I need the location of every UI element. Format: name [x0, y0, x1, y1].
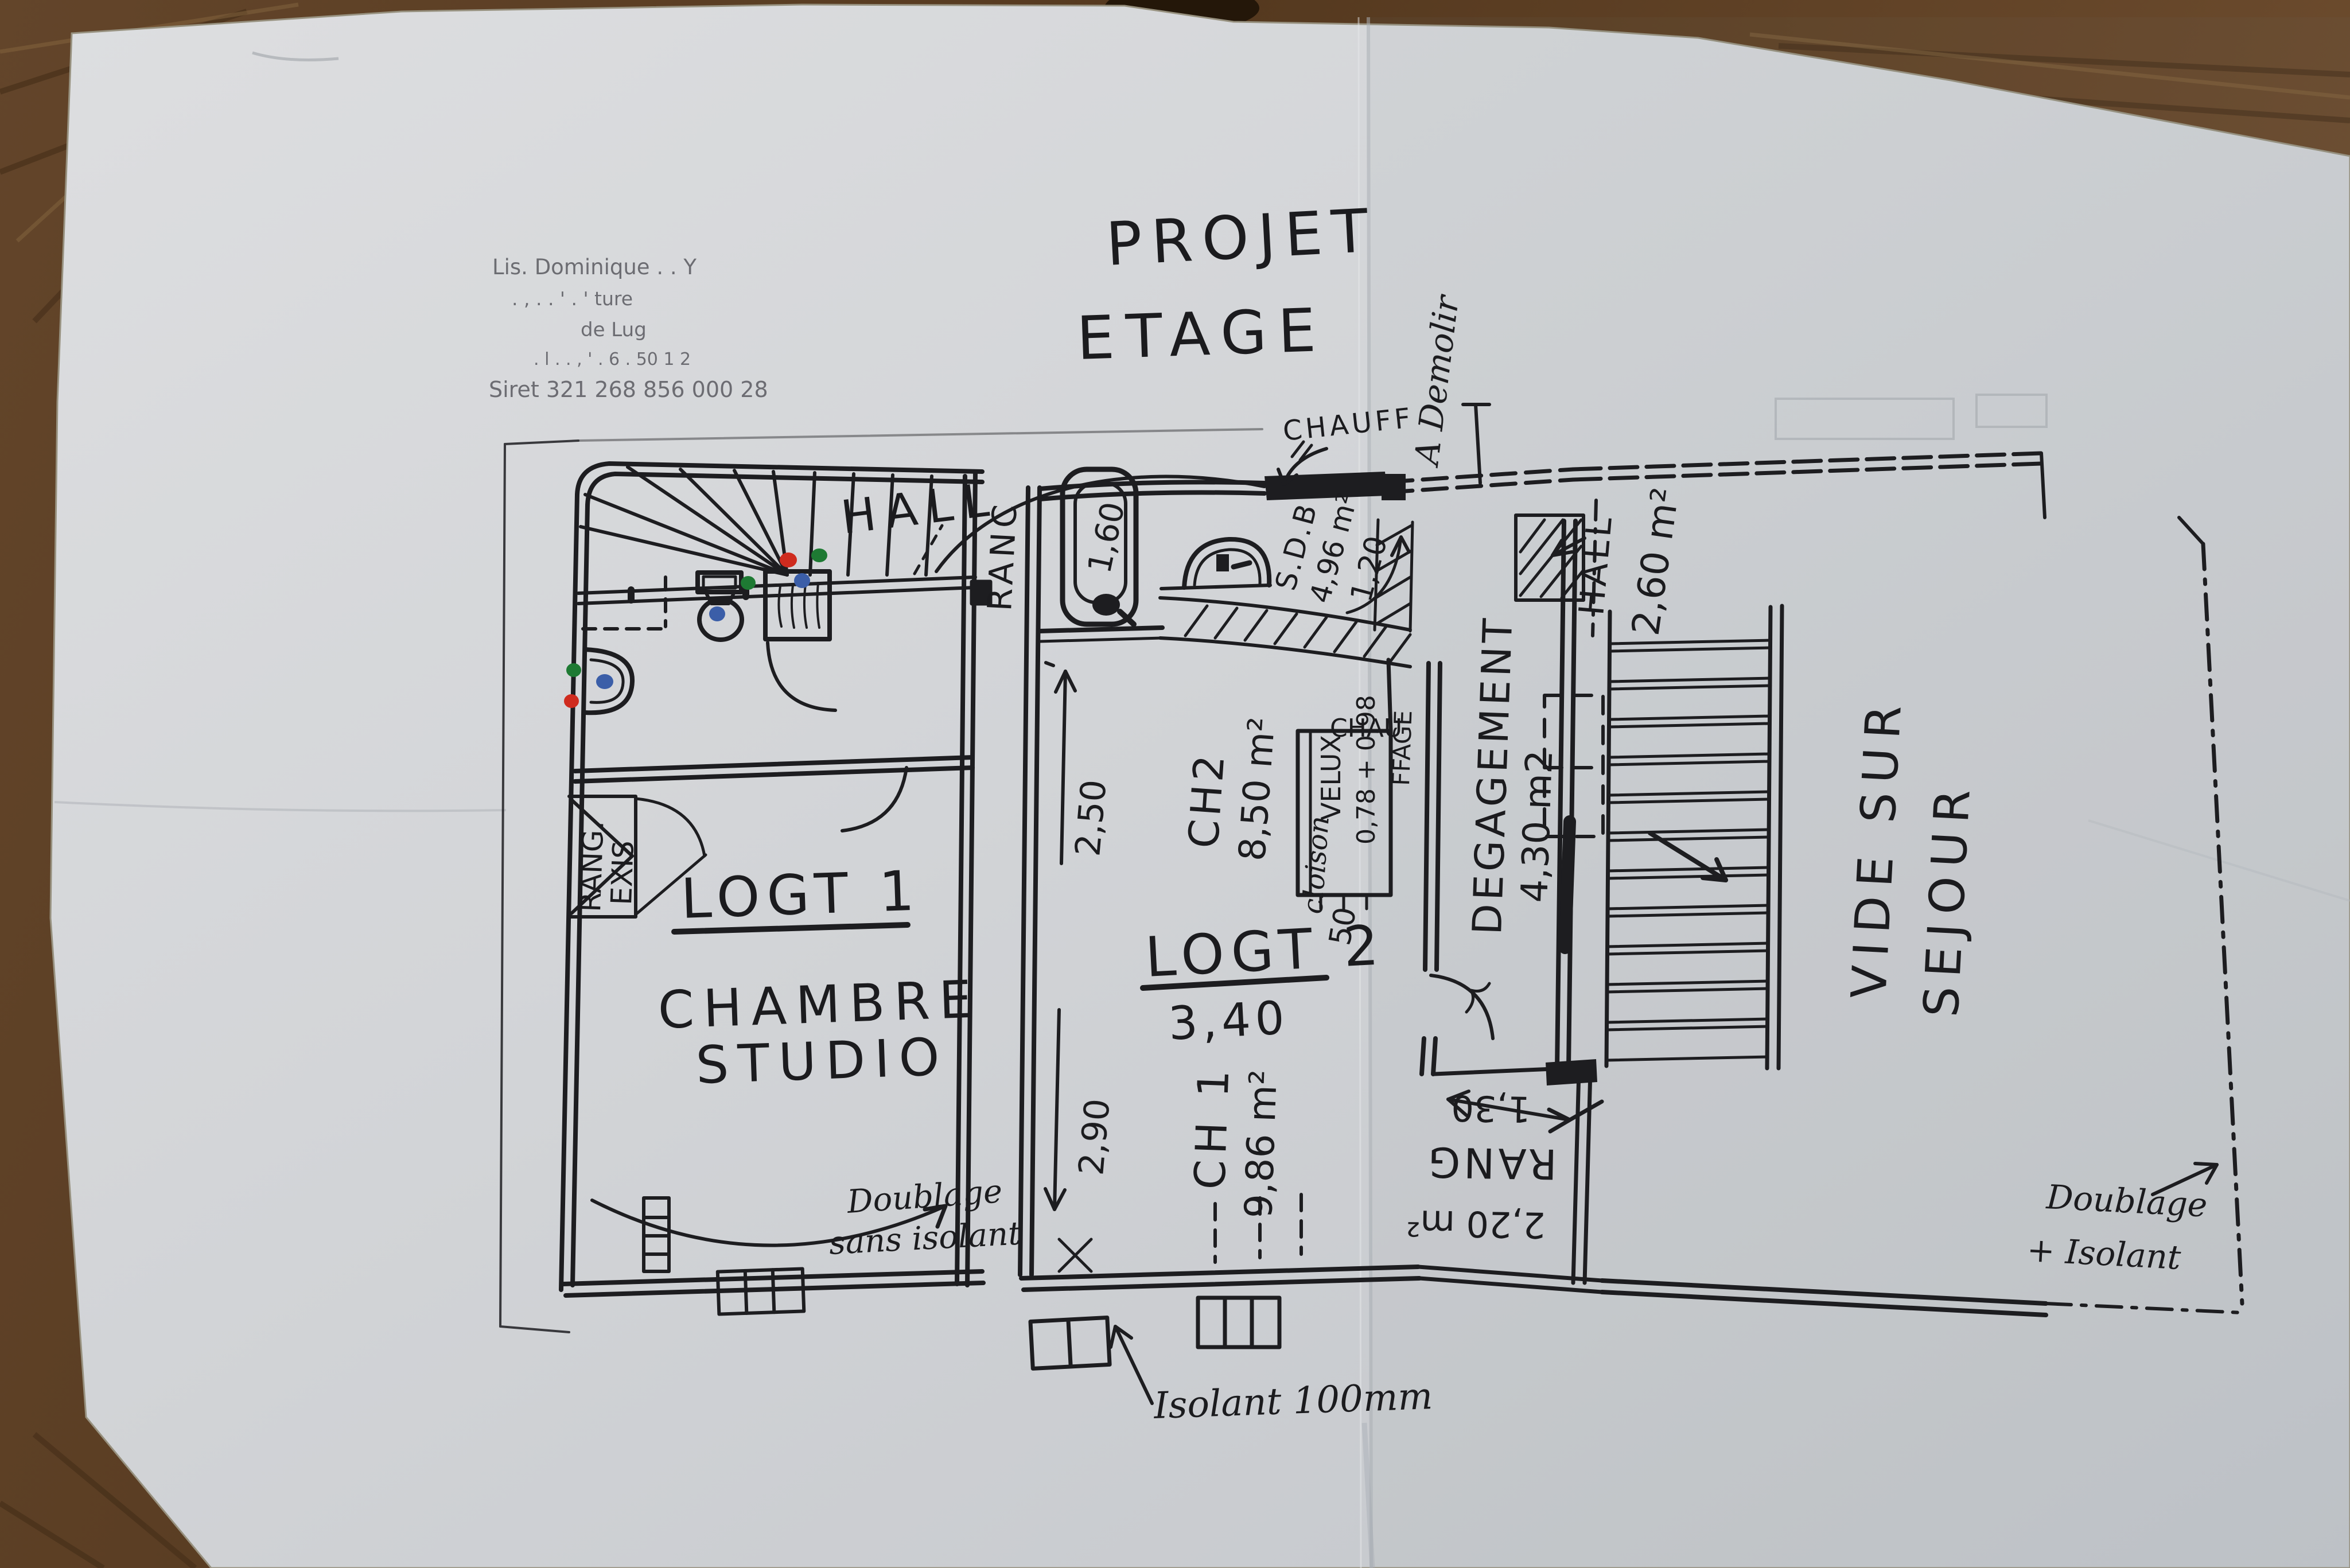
- label-ch1-area: 9,86 m²: [1236, 1069, 1286, 1219]
- dim-logt2-340: 3,40: [1167, 991, 1290, 1050]
- label-logt1: LOGT 1: [680, 858, 922, 931]
- label-studio: STUDIO: [695, 1027, 950, 1096]
- dim-ch1-290: 2,90: [1071, 1097, 1118, 1177]
- blue-marker-dot: [709, 606, 725, 621]
- stamp-line2: . , . . ' . ' ture: [512, 287, 633, 310]
- label-rang-room: RANG: [1425, 1138, 1557, 1188]
- label-ch2: CH2: [1179, 750, 1234, 850]
- blue-marker-dot: [596, 674, 613, 689]
- note-doublage-plus-2: + Isolant: [2026, 1230, 2182, 1277]
- green-marker-dot: [811, 548, 827, 562]
- label-chauffage-2: FFAGE: [1387, 710, 1418, 786]
- label-ranc: RANC: [980, 499, 1025, 612]
- blue-marker-dot: [794, 573, 810, 588]
- floorplan-photo: Lis. Dominique . . Y . , . . ' . ' ture …: [0, 0, 2350, 1568]
- dim-velux: 0,78 + 0,98: [1352, 695, 1381, 845]
- dim-rang-130: 1,30: [1451, 1087, 1531, 1130]
- stamp-line4: . l . . , ' . 6 . 50 1 2: [534, 349, 691, 369]
- stamp-line3: de Lug: [581, 318, 647, 341]
- label-degagement-area: 4,30 m2: [1514, 749, 1561, 903]
- stamp-siret: Siret 321 268 856 000 28: [489, 377, 768, 402]
- dim-ch2-250: 2,50: [1068, 778, 1114, 858]
- red-marker-dot: [564, 694, 579, 708]
- label-logt2: LOGT 2: [1143, 913, 1387, 990]
- title-line2: ETAGE: [1076, 295, 1329, 373]
- green-marker-dot: [566, 663, 581, 677]
- label-ch1: CH 1: [1185, 1064, 1239, 1190]
- label-rang-exis-2: EXIS: [605, 840, 640, 905]
- title-line1: PROJET: [1104, 195, 1379, 279]
- label-rang-area: 2,20 m²: [1406, 1202, 1546, 1246]
- stamp-line1: Lis. Dominique . . Y: [492, 255, 697, 279]
- label-cloison: cloison: [1297, 815, 1336, 915]
- label-velux: VELUX: [1316, 735, 1347, 820]
- green-marker-dot: [741, 576, 756, 590]
- red-marker-dot: [780, 553, 797, 567]
- photo-of-floorplan: Lis. Dominique . . Y . , . . ' . ' ture …: [0, 0, 2350, 1568]
- chauff-thick-wall: [1265, 472, 1387, 500]
